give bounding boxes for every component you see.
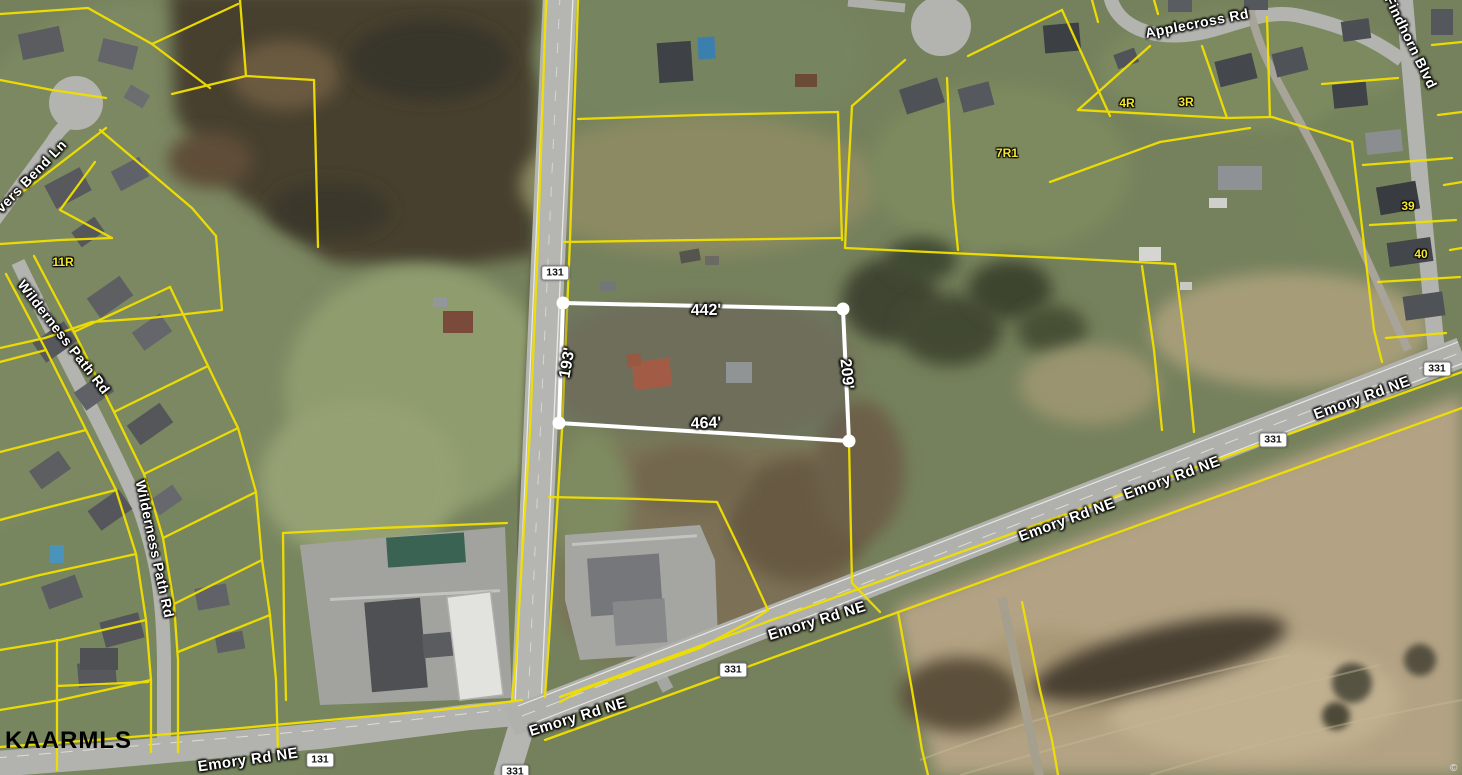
satellite-imagery-layer	[0, 0, 1462, 775]
parcel-corner-marker	[837, 303, 850, 316]
parcel-corner-marker	[553, 417, 566, 430]
route-shield-331-south: 331	[501, 765, 529, 775]
route-shield-331-east: 331	[1259, 433, 1287, 448]
copyright-mark: ©	[1450, 763, 1457, 774]
subject-parcel-outline	[553, 297, 856, 448]
parcel-corner-marker	[557, 297, 570, 310]
satellite-map[interactable]: Applecross Rd Findhorn Blvd vers Bend Ln…	[0, 0, 1462, 775]
route-shield-331-far-east: 331	[1423, 362, 1451, 377]
mls-watermark: KAARMLS	[5, 727, 132, 755]
route-shield-331-center: 331	[719, 663, 747, 678]
parcel-corner-marker	[843, 435, 856, 448]
route-shield-131-north: 131	[541, 266, 569, 281]
route-shield-131-south: 131	[306, 753, 334, 768]
